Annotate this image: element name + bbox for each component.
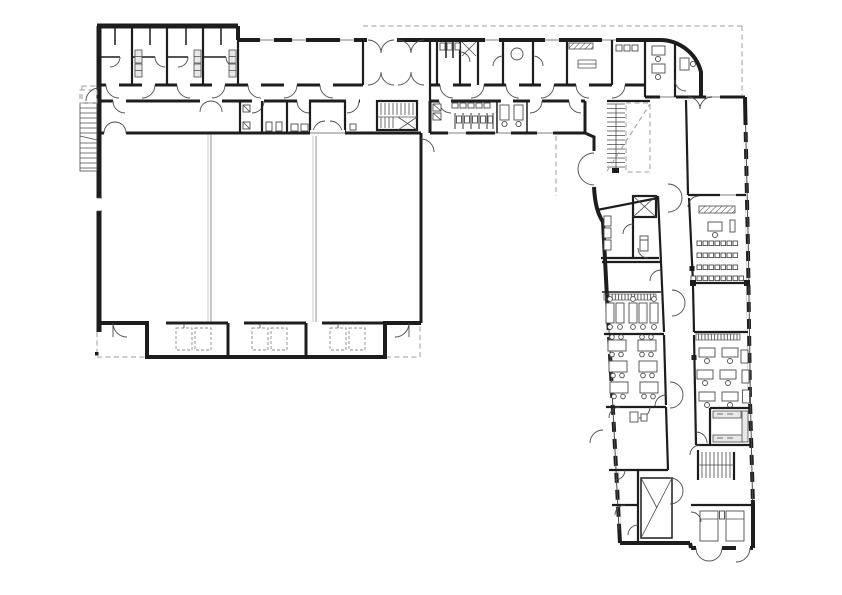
desk-groups-large <box>608 335 658 399</box>
main-stairwell <box>607 101 650 173</box>
kitchenette <box>690 408 750 455</box>
junction-rooms <box>597 196 659 258</box>
lecture-room <box>690 206 750 286</box>
entrance-vestibule <box>363 40 430 101</box>
sanitary-block <box>430 101 585 137</box>
wc-fixtures <box>433 103 493 129</box>
door-arc <box>421 139 434 152</box>
computer-room <box>694 332 750 443</box>
rest-room <box>691 505 753 541</box>
floor-plan-svg <box>0 0 842 595</box>
entrance-doors <box>368 40 424 85</box>
window-band-south <box>448 130 553 137</box>
computer-desks <box>697 348 750 408</box>
beds <box>700 511 744 541</box>
wing-corridor-doors <box>668 184 685 504</box>
desk-groups-small <box>606 297 658 330</box>
court-dividers <box>208 134 316 322</box>
west-external-stair <box>80 90 97 171</box>
changing-rooms <box>99 28 238 85</box>
east-external-stair <box>698 450 734 480</box>
office-desks <box>500 105 523 127</box>
north-wing <box>86 26 745 136</box>
drawing-sheet <box>0 0 842 595</box>
chair-rows <box>691 241 744 281</box>
tall-classroom <box>688 192 746 207</box>
north-row-rooms <box>437 40 645 97</box>
stored-equipment <box>176 323 365 350</box>
lobby <box>590 412 668 470</box>
equipment-storage-bays <box>147 321 385 357</box>
sports-hall <box>95 26 434 337</box>
window-band <box>260 37 720 101</box>
door-arc <box>395 323 409 337</box>
classroom-small <box>602 262 661 329</box>
door-arc <box>578 153 594 185</box>
stage-stair <box>377 101 417 130</box>
door-arc <box>113 323 127 337</box>
classroom-wing <box>578 97 753 562</box>
